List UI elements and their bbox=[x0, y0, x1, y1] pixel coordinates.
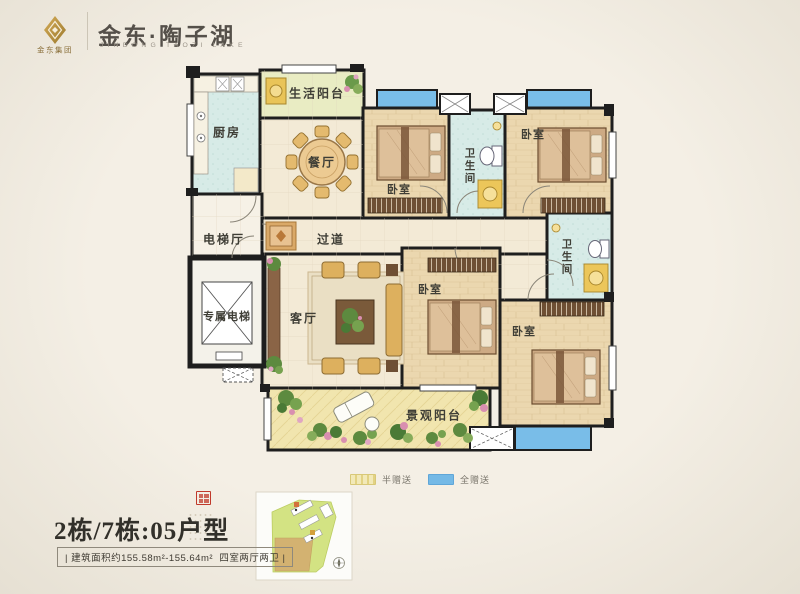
label-kitchen: 厨房 bbox=[213, 124, 241, 141]
label-private-elevator: 专属电梯 bbox=[203, 308, 251, 324]
label-living: 客厅 bbox=[290, 310, 318, 327]
floorplan-graphic bbox=[0, 0, 800, 594]
unit-title: 2栋/7栋:05户型 bbox=[54, 511, 229, 547]
label-bath-top: 卫生间 bbox=[463, 147, 478, 185]
washer-icon bbox=[266, 78, 286, 104]
full-gift-label: 全赠送 bbox=[460, 473, 490, 486]
label-elevator-hall: 电梯厅 bbox=[203, 231, 245, 248]
label-bedroom-bottom-right: 卧室 bbox=[512, 323, 536, 339]
half-gift-label: 半赠送 bbox=[382, 473, 412, 486]
bay-window bbox=[470, 427, 514, 450]
entry-rug-icon bbox=[266, 222, 296, 250]
red-seal bbox=[196, 491, 211, 505]
label-service-balcony: 生活阳台 bbox=[289, 85, 345, 102]
compass-icon bbox=[334, 558, 345, 569]
label-bedroom-top-right: 卧室 bbox=[521, 126, 545, 142]
label-dining: 餐厅 bbox=[308, 154, 336, 171]
label-bedroom-mid: 卧室 bbox=[418, 281, 442, 297]
label-bath-right: 卫生间 bbox=[560, 238, 575, 276]
label-bedroom-top-left: 卧室 bbox=[387, 181, 411, 197]
label-view-balcony: 景观阳台 bbox=[406, 407, 462, 424]
half-gift-swatch-icon bbox=[350, 474, 376, 485]
full-gift-swatch-icon bbox=[428, 474, 454, 485]
gift-legend: 半赠送 全赠送 bbox=[350, 473, 490, 486]
legend-half-gift: 半赠送 bbox=[350, 473, 412, 486]
logo-diamond-icon bbox=[44, 16, 66, 44]
sofa-set-icon bbox=[308, 262, 404, 374]
label-corridor: 过道 bbox=[317, 231, 345, 248]
floorplan-page: 金东集团 金东·陶子湖 JINDONG TAOZI LAKE 厨房 生活阳台 餐… bbox=[0, 0, 800, 594]
unit-spec: | 建筑面积约155.58m²-155.64m² 四室两厅两卫 | bbox=[57, 547, 293, 567]
legend-full-gift: 全赠送 bbox=[428, 473, 490, 486]
